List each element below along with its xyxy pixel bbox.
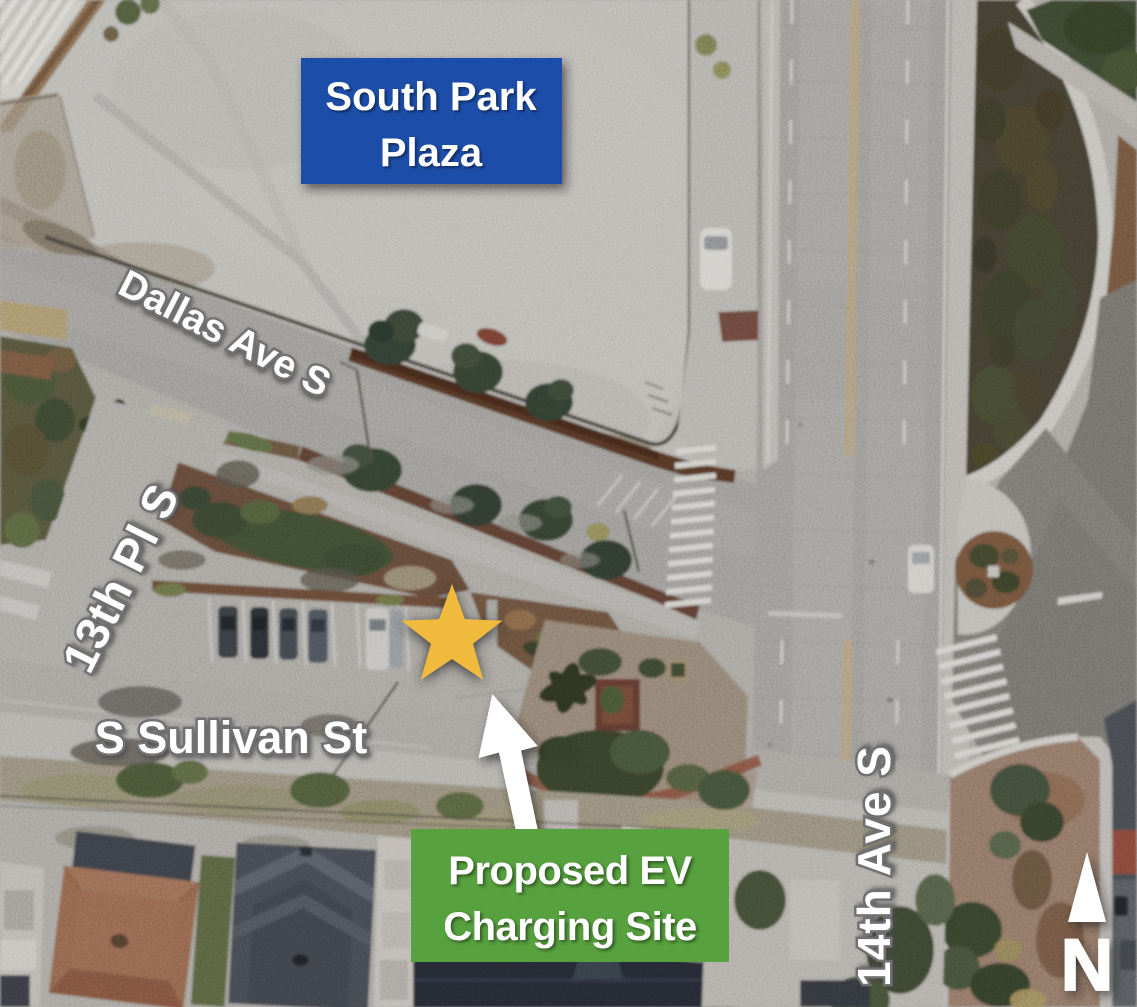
svg-text:Charging Site: Charging Site [443,905,697,949]
svg-text:South Park: South Park [325,75,537,119]
svg-text:N: N [1061,925,1114,1006]
svg-text:Proposed EV: Proposed EV [448,849,692,893]
svg-text:Plaza: Plaza [380,131,483,175]
svg-text:S Sullivan St: S Sullivan St [95,712,368,763]
svg-text:14th Ave S: 14th Ave S [848,745,900,987]
